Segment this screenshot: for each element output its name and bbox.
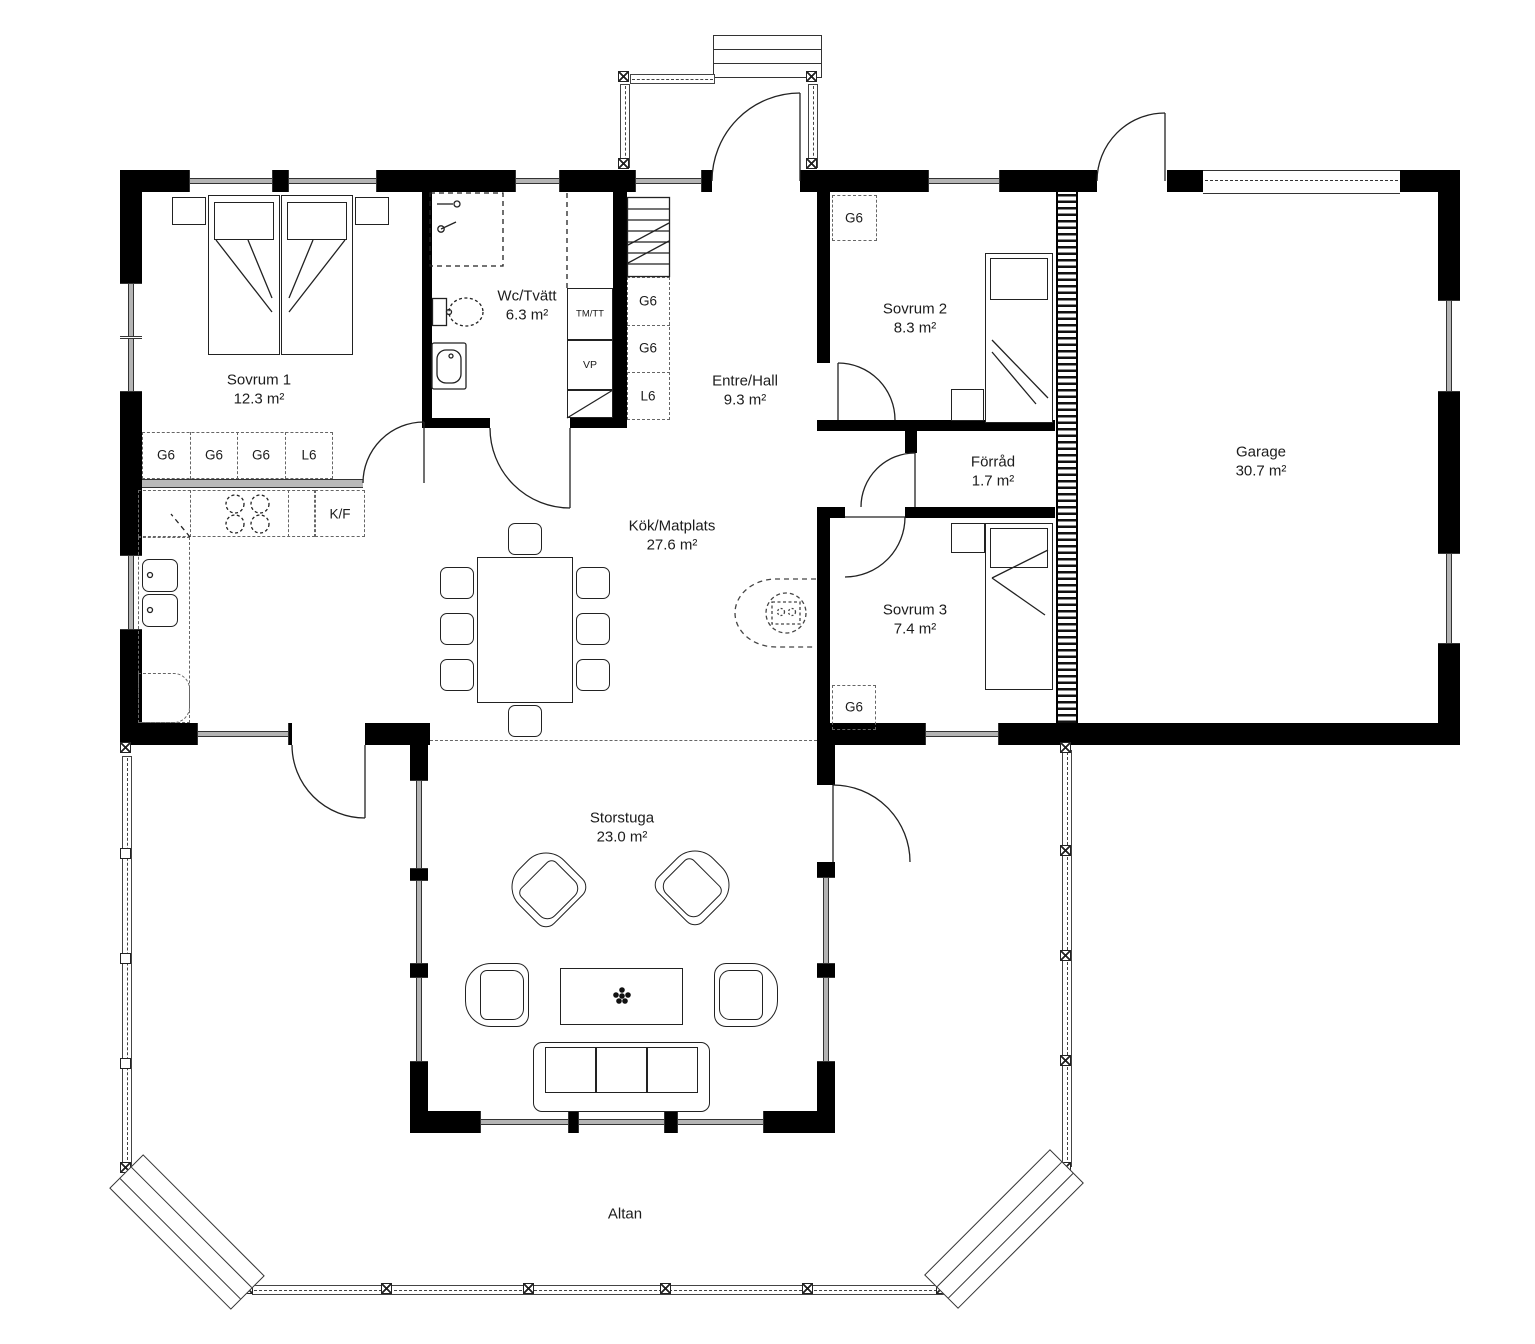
room-name: Kök/Matplats xyxy=(629,517,716,536)
room-area: 7.4 m² xyxy=(883,620,947,639)
linen-closet-code: L6 xyxy=(301,448,316,463)
washbasin xyxy=(432,343,466,389)
hatched-cabinet xyxy=(628,198,670,277)
terrace-door-east xyxy=(833,785,910,862)
wall-segment xyxy=(271,170,288,192)
armchair xyxy=(501,842,592,933)
chair xyxy=(440,567,474,599)
step-tread xyxy=(714,63,821,64)
linen-closet-code: L6 xyxy=(640,389,655,404)
chair xyxy=(440,659,474,691)
railing-post xyxy=(806,158,817,169)
armchair xyxy=(714,963,778,1027)
window xyxy=(817,877,835,964)
wall-segment xyxy=(817,862,835,877)
wardrobe-code: G6 xyxy=(845,211,863,226)
chair xyxy=(508,705,542,737)
railing-post xyxy=(1060,845,1071,856)
sofa-cushion xyxy=(647,1047,698,1093)
room-label-entre-hall: Entre/Hall 9.3 m² xyxy=(712,372,778,410)
railing-post xyxy=(523,1283,534,1294)
pillow xyxy=(990,528,1048,568)
chair xyxy=(576,567,610,599)
pillow xyxy=(214,202,274,240)
window xyxy=(480,1111,569,1133)
toilet xyxy=(433,298,484,326)
nightstand xyxy=(355,197,389,225)
room-label-sovrum2: Sovrum 2 8.3 m² xyxy=(883,300,947,338)
room-label-garage: Garage 30.7 m² xyxy=(1236,443,1287,481)
garage-port xyxy=(1203,170,1400,194)
wardrobe-code: G6 xyxy=(157,448,175,463)
window xyxy=(925,723,999,745)
wall-segment xyxy=(762,1111,835,1133)
armchair xyxy=(465,963,529,1027)
wall-segment xyxy=(1438,170,1460,300)
room-name: Garage xyxy=(1236,443,1287,462)
armchair xyxy=(650,840,741,931)
wall-segment xyxy=(570,418,613,428)
porch-railing xyxy=(620,84,630,168)
wall-segment xyxy=(1438,390,1460,553)
wall-tap xyxy=(437,201,460,207)
wall-segment xyxy=(120,170,142,283)
deck-corner-steps xyxy=(924,1149,1084,1309)
wall-segment xyxy=(817,507,845,518)
wardrobe-code: G6 xyxy=(252,448,270,463)
shower-head xyxy=(438,222,456,232)
sovrum1-door xyxy=(363,422,424,483)
coffee-table xyxy=(560,968,683,1025)
wardrobe-divider xyxy=(285,432,286,479)
fridge-freezer-code: K/F xyxy=(329,507,350,522)
room-name: Storstuga xyxy=(590,809,654,828)
wall-segment xyxy=(410,962,428,977)
railing-post xyxy=(120,1058,131,1069)
counter-divider xyxy=(190,490,191,537)
step-tread xyxy=(937,1162,1062,1287)
window xyxy=(120,283,142,337)
wall-segment xyxy=(998,170,1097,192)
room-area: 8.3 m² xyxy=(883,319,947,338)
fireplace xyxy=(735,579,816,647)
window xyxy=(189,170,273,192)
wall-segment xyxy=(817,745,835,785)
window xyxy=(1438,553,1460,644)
railing-post xyxy=(618,71,629,82)
wall-segment xyxy=(365,723,430,745)
ceiling-break-line xyxy=(430,740,817,741)
wardrobe-code: G6 xyxy=(205,448,223,463)
floor-plan: Sovrum 1 12.3 m² Wc/Tvätt 6.3 m² Entre/H… xyxy=(0,0,1535,1344)
window xyxy=(578,1111,665,1133)
room-label-wc-tvatt: Wc/Tvätt 6.3 m² xyxy=(497,287,556,325)
garage-separating-wall xyxy=(1056,192,1078,723)
wardrobe-divider xyxy=(627,372,670,373)
sink-bowl xyxy=(142,594,178,627)
shower-area xyxy=(430,193,567,288)
sofa-cushion xyxy=(596,1047,647,1093)
room-name: Entre/Hall xyxy=(712,372,778,391)
sink-bowl xyxy=(142,559,178,592)
wall-segment xyxy=(558,170,635,192)
room-label-storstuga: Storstuga 23.0 m² xyxy=(590,809,654,847)
room-area: 9.3 m² xyxy=(712,391,778,410)
room-area: 23.0 m² xyxy=(590,828,654,847)
washer-dryer-code: TM/TT xyxy=(576,309,604,320)
room-area: 27.6 m² xyxy=(629,536,716,555)
pillow xyxy=(990,258,1048,300)
wall-segment xyxy=(1438,642,1460,745)
room-label-forrad: Förråd 1.7 m² xyxy=(971,453,1015,491)
window xyxy=(288,170,377,192)
railing-post xyxy=(1060,950,1071,961)
window xyxy=(120,338,142,392)
room-name: Förråd xyxy=(971,453,1015,472)
sovrum2-door xyxy=(838,363,895,420)
wall-segment xyxy=(663,1111,677,1133)
nightstand xyxy=(951,389,984,421)
wall-segment xyxy=(1167,170,1203,192)
railing-post xyxy=(1060,1055,1071,1066)
porch-railing xyxy=(808,84,818,168)
chair xyxy=(576,613,610,645)
room-label-kok-matplats: Kök/Matplats 27.6 m² xyxy=(629,517,716,555)
room-name: Sovrum 1 xyxy=(227,371,291,390)
window xyxy=(635,170,702,192)
window xyxy=(817,977,835,1062)
sofa-cushion xyxy=(545,1047,596,1093)
wall-segment xyxy=(375,170,515,192)
window xyxy=(928,170,1000,192)
window xyxy=(410,780,428,869)
wall-segment xyxy=(120,723,197,745)
wardrobe-code: G6 xyxy=(845,700,863,715)
room-label-altan: Altan xyxy=(608,1206,642,1225)
room-area: 30.7 m² xyxy=(1236,462,1287,481)
dishwasher-cabinet xyxy=(138,673,190,723)
nightstand xyxy=(951,523,985,553)
railing-post xyxy=(806,71,817,82)
chair xyxy=(440,613,474,645)
light-partition xyxy=(142,479,363,488)
window xyxy=(410,880,428,964)
chair xyxy=(508,523,542,555)
wardrobe-divider xyxy=(190,432,191,479)
room-label-sovrum3: Sovrum 3 7.4 m² xyxy=(883,601,947,639)
room-label-sovrum1: Sovrum 1 12.3 m² xyxy=(227,371,291,409)
wall-segment xyxy=(422,418,490,428)
front-door xyxy=(712,93,800,181)
room-area: 12.3 m² xyxy=(227,390,291,409)
window xyxy=(515,170,560,192)
room-name: Sovrum 3 xyxy=(883,601,947,620)
railing-post xyxy=(120,848,131,859)
terrace-door-west xyxy=(292,745,365,818)
room-name: Wc/Tvätt xyxy=(497,287,556,306)
porch-railing xyxy=(630,74,715,84)
railing-post xyxy=(1060,742,1071,753)
garage-door xyxy=(1097,113,1165,181)
wardrobe-code: G6 xyxy=(639,294,657,309)
wc-door xyxy=(490,428,570,508)
wardrobe-code: G6 xyxy=(639,341,657,356)
counter-divider xyxy=(288,490,289,537)
nightstand xyxy=(172,197,206,225)
wall-segment xyxy=(905,431,917,453)
wardrobe-divider xyxy=(237,432,238,479)
deck-corner-steps xyxy=(109,1154,265,1310)
room-name: Sovrum 2 xyxy=(883,300,947,319)
wall-segment xyxy=(817,962,835,977)
wall-segment xyxy=(800,170,928,192)
wall-segment xyxy=(613,192,627,428)
step-tread xyxy=(131,1167,252,1288)
railing-post xyxy=(660,1283,671,1294)
pillow xyxy=(287,202,347,240)
forrad-door xyxy=(861,453,915,507)
altan-railing-bottom xyxy=(252,1285,944,1295)
window xyxy=(1438,300,1460,392)
step-tread xyxy=(120,1178,241,1299)
wall-segment xyxy=(410,745,428,780)
window xyxy=(677,1111,764,1133)
room-area: 1.7 m² xyxy=(971,472,1015,491)
wall-segment xyxy=(817,518,830,723)
wall-segment xyxy=(905,507,1055,518)
step-tread xyxy=(714,49,821,50)
window xyxy=(410,977,428,1062)
railing-post xyxy=(120,953,131,964)
wardrobe-divider xyxy=(627,325,670,326)
sovrum3-door xyxy=(845,517,905,577)
dining-table xyxy=(477,557,573,703)
railing-post xyxy=(381,1283,392,1294)
step-tread xyxy=(948,1173,1073,1298)
room-name: Altan xyxy=(608,1206,642,1225)
shelf-box xyxy=(567,390,613,418)
chair xyxy=(576,659,610,691)
heat-pump-code: VP xyxy=(583,359,597,371)
railing-post xyxy=(618,158,629,169)
railing-post xyxy=(802,1283,813,1294)
railing-post xyxy=(120,742,131,753)
wall-segment xyxy=(410,1111,480,1133)
window xyxy=(197,723,289,745)
wall-segment xyxy=(817,192,830,363)
room-area: 6.3 m² xyxy=(497,306,556,325)
wall-segment xyxy=(422,192,432,428)
